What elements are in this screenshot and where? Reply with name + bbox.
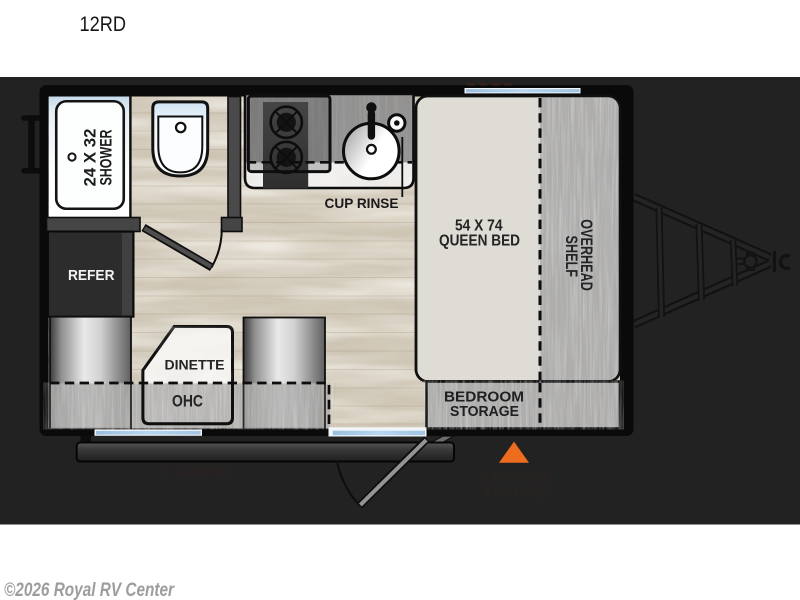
- svg-text:REFER: REFER: [68, 267, 115, 284]
- svg-text:STORAGE: STORAGE: [483, 484, 547, 500]
- svg-text:SHELF: SHELF: [562, 236, 580, 278]
- svg-text:©2026 Royal RV Center: ©2026 Royal RV Center: [4, 579, 175, 600]
- svg-text:CUP RINSE: CUP RINSE: [325, 195, 399, 211]
- svg-text:LADDER PREP: LADDER PREP: [0, 103, 11, 192]
- svg-text:OHC: OHC: [172, 392, 203, 411]
- svg-text:8' AWNING: 8' AWNING: [160, 463, 234, 479]
- svg-text:SHOWER: SHOWER: [98, 129, 116, 185]
- svg-text:12RD: 12RD: [80, 13, 127, 36]
- svg-text:STORAGE: STORAGE: [450, 404, 519, 420]
- svg-text:QUEEN BED: QUEEN BED: [439, 233, 520, 250]
- svg-text:DINETTE: DINETTE: [165, 357, 225, 373]
